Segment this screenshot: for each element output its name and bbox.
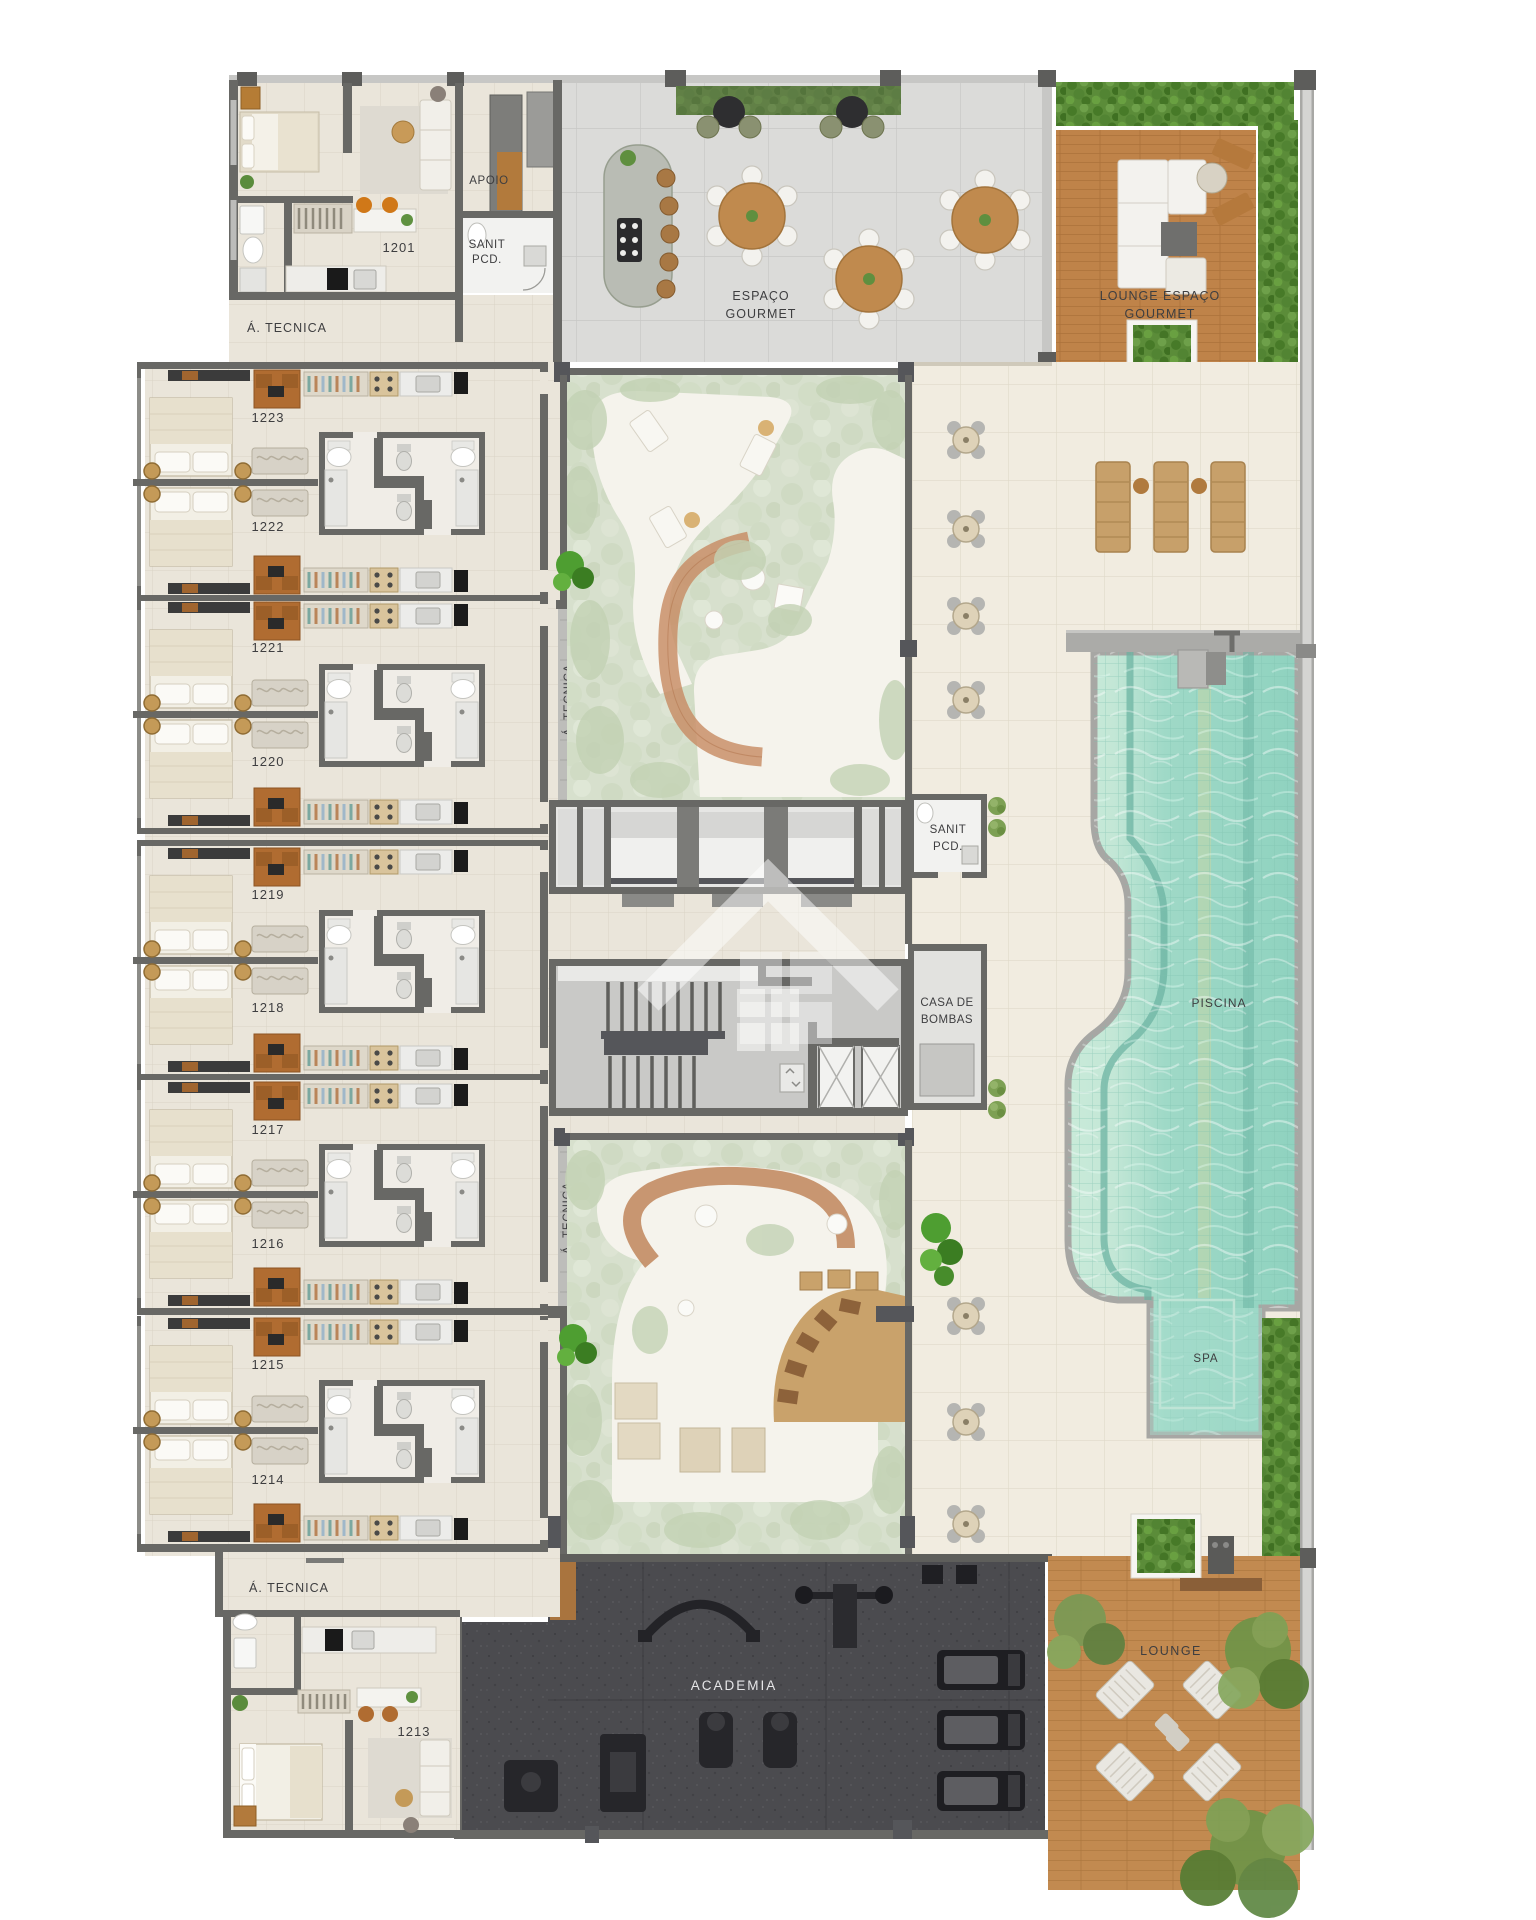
- svg-text:GOURMET: GOURMET: [1125, 307, 1196, 321]
- svg-text:1214: 1214: [252, 1472, 285, 1487]
- svg-text:ACADEMIA: ACADEMIA: [691, 1678, 778, 1693]
- svg-text:APOIO: APOIO: [469, 175, 508, 187]
- svg-text:GOURMET: GOURMET: [726, 307, 797, 321]
- svg-text:PCD.: PCD.: [472, 254, 502, 266]
- svg-text:1217: 1217: [252, 1122, 285, 1137]
- svg-text:SANIT: SANIT: [930, 824, 967, 836]
- svg-text:1221: 1221: [252, 640, 285, 655]
- svg-text:1219: 1219: [252, 887, 285, 902]
- svg-text:1220: 1220: [252, 754, 285, 769]
- svg-text:LOUNGE ESPAÇO: LOUNGE ESPAÇO: [1100, 289, 1220, 303]
- svg-text:PISCINA: PISCINA: [1191, 996, 1246, 1010]
- svg-text:1223: 1223: [252, 410, 285, 425]
- svg-text:Á. TECNICA: Á. TECNICA: [247, 320, 327, 335]
- svg-text:PCD.: PCD.: [933, 841, 963, 853]
- svg-text:LOUNGE: LOUNGE: [1140, 1644, 1202, 1658]
- svg-text:ESPAÇO: ESPAÇO: [732, 289, 789, 303]
- svg-text:1201: 1201: [383, 240, 416, 255]
- svg-text:BOMBAS: BOMBAS: [921, 1014, 973, 1026]
- svg-text:SPA: SPA: [1193, 1353, 1218, 1365]
- svg-text:1216: 1216: [252, 1236, 285, 1251]
- svg-text:1222: 1222: [252, 519, 285, 534]
- svg-text:1215: 1215: [252, 1357, 285, 1372]
- svg-text:1218: 1218: [252, 1000, 285, 1015]
- svg-text:SANIT: SANIT: [469, 239, 506, 251]
- svg-text:1213: 1213: [398, 1724, 431, 1739]
- svg-text:CASA DE: CASA DE: [920, 997, 973, 1009]
- svg-text:Á. TECNICA: Á. TECNICA: [249, 1580, 329, 1595]
